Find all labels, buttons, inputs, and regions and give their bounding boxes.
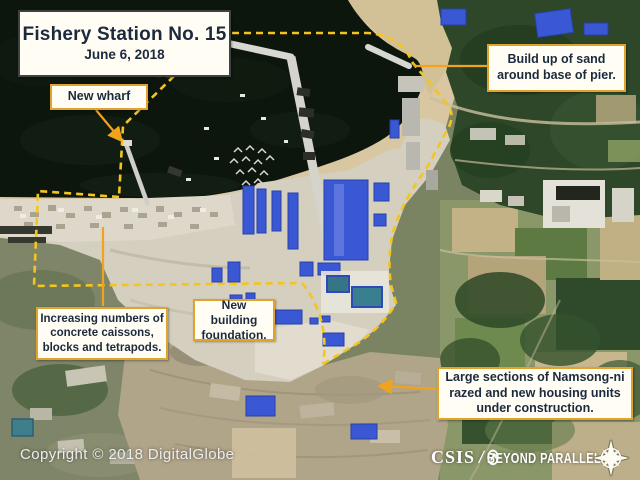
csis-beyond-parallel-logo: CSIS / BEYOND PARALLEL (431, 447, 611, 468)
dashed-outline-construction-west (302, 283, 324, 364)
logo-slash: / (477, 448, 486, 468)
dashed-outline-construction-zone (323, 62, 452, 364)
callout-foundation: New building foundation. (193, 299, 275, 341)
callout-sand-buildup-label: Build up of sand around base of pier. (491, 52, 622, 83)
namsong-arrow (380, 386, 437, 389)
callout-sand-buildup: Build up of sand around base of pier. (487, 44, 626, 92)
new-wharf-arrow (96, 110, 121, 140)
callout-namsong: Large sections of Namsong-ni razed and n… (437, 367, 633, 420)
dashed-outline-caisson-yard (34, 191, 302, 286)
image-date: June 6, 2018 (84, 47, 164, 64)
callout-new-wharf-label: New wharf (68, 89, 131, 105)
callout-caissons: Increasing numbers of concrete caissons,… (36, 307, 168, 360)
annotated-satellite-image: Fishery Station No. 15 June 6, 2018 New … (0, 0, 640, 480)
dashed-leader-to-pier (232, 33, 412, 62)
callout-new-wharf: New wharf (50, 84, 148, 110)
title-box: Fishery Station No. 15 June 6, 2018 (18, 10, 231, 77)
callout-namsong-label: Large sections of Namsong-ni razed and n… (441, 370, 629, 417)
page-title: Fishery Station No. 15 (23, 23, 227, 47)
callout-foundation-label: New building foundation. (197, 298, 271, 343)
csis-wordmark: CSIS (431, 447, 475, 468)
copyright-text: Copyright © 2018 DigitalGlobe (20, 446, 234, 463)
callout-caissons-label: Increasing numbers of concrete caissons,… (40, 312, 164, 355)
